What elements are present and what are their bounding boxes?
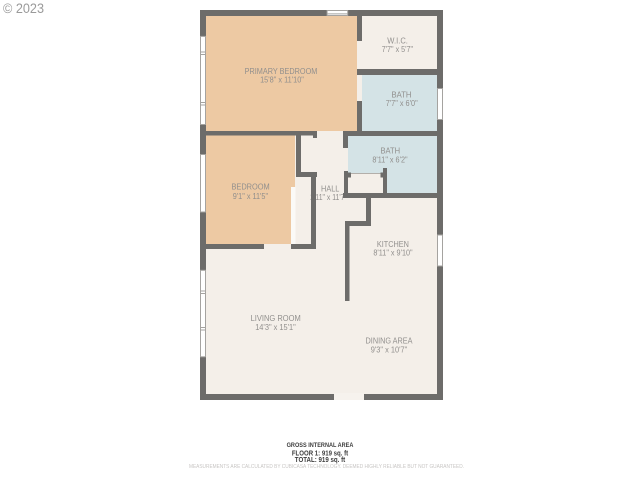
svg-text:BATH: BATH xyxy=(380,147,400,156)
svg-text:9'3" x 10'7": 9'3" x 10'7" xyxy=(371,346,408,355)
svg-text:9'1" x 11'5": 9'1" x 11'5" xyxy=(233,192,268,201)
svg-text:7'7" x 5'7": 7'7" x 5'7" xyxy=(382,45,414,54)
svg-text:TOTAL: 919 sq. ft: TOTAL: 919 sq. ft xyxy=(295,455,346,464)
svg-text:15'8" x 11'10": 15'8" x 11'10" xyxy=(260,76,304,85)
svg-text:LIVING ROOM: LIVING ROOM xyxy=(251,314,302,323)
svg-text:8'11" x 6'2": 8'11" x 6'2" xyxy=(372,156,407,165)
svg-text:KITCHEN: KITCHEN xyxy=(377,240,409,249)
svg-text:© 2023: © 2023 xyxy=(3,1,44,16)
svg-text:MEASUREMENTS ARE CALCULATED BY: MEASUREMENTS ARE CALCULATED BY CUBICASA … xyxy=(189,464,464,470)
svg-text:BEDROOM: BEDROOM xyxy=(231,183,270,192)
svg-text:7'7" x 6'0": 7'7" x 6'0" xyxy=(386,99,418,108)
svg-text:8'11" x 9'10": 8'11" x 9'10" xyxy=(373,249,412,258)
svg-text:DINING AREA: DINING AREA xyxy=(366,337,413,346)
svg-text:14'3" x 15'1": 14'3" x 15'1" xyxy=(255,323,296,332)
